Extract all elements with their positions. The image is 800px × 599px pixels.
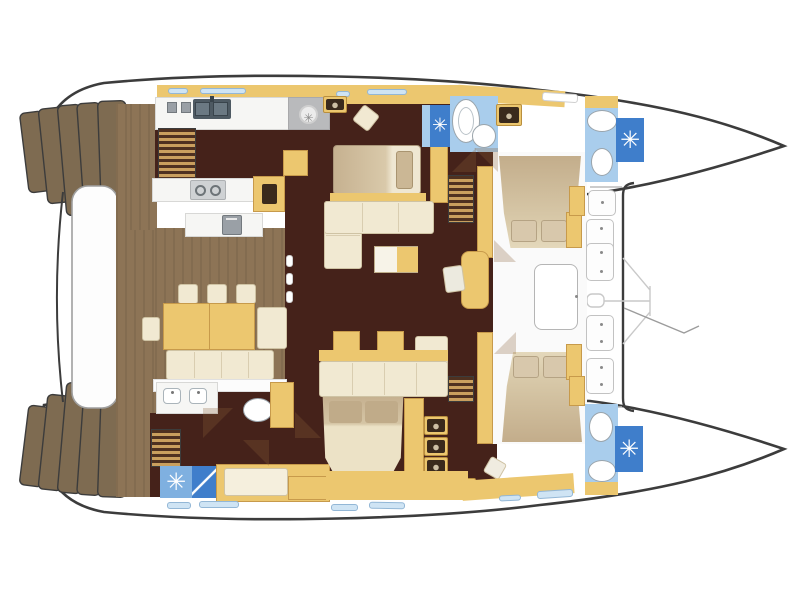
door-swing — [494, 332, 516, 354]
dining-chair — [236, 284, 256, 304]
salon-door-track — [286, 255, 293, 267]
master-shower: ✳ — [160, 466, 192, 498]
deck-hatch — [586, 243, 614, 281]
hull-window — [367, 89, 407, 95]
bathroom-sink — [587, 110, 617, 132]
salon-door-track — [286, 273, 293, 285]
master-bath-cabinet — [270, 382, 294, 428]
wardrobe — [430, 145, 448, 203]
bathroom-sink — [588, 460, 616, 482]
port-hull-stairs-aft — [151, 429, 181, 467]
galley-appliance-icon — [181, 102, 191, 113]
bed-pillow — [511, 220, 537, 242]
port-cabinetry-band — [326, 471, 468, 500]
hull-window — [168, 88, 188, 94]
toilet — [591, 148, 613, 176]
aft-platform — [72, 186, 118, 408]
dining-end-seat — [257, 307, 287, 349]
dining-chair — [142, 317, 160, 341]
bed-pillow — [365, 401, 398, 423]
bulkhead-cabinet — [477, 166, 493, 258]
lounge-side-cabinet — [566, 212, 582, 248]
shower-drain-icon: ✳ — [166, 470, 186, 494]
toilet — [589, 412, 613, 442]
door-swing — [203, 408, 233, 438]
equipment-locker-icon — [424, 437, 448, 456]
salon-aft-sofa — [319, 361, 448, 397]
lounge-table — [534, 264, 578, 330]
master-shower-glass — [192, 466, 216, 498]
master-desk — [288, 476, 328, 500]
deck-hatch — [586, 315, 614, 351]
hull-window — [331, 504, 358, 511]
hull-window — [199, 501, 239, 508]
hull-window — [499, 494, 521, 501]
vanity-sink — [163, 388, 181, 404]
starboard-hull-stairs-fwd — [448, 175, 474, 223]
hull-window — [200, 88, 246, 94]
aft-cabin-bed — [333, 145, 421, 195]
ceiling-fan-icon: ✳ — [299, 105, 318, 124]
door-swing — [452, 148, 476, 172]
fwd-shower-stall: ✳ — [616, 118, 644, 162]
guest-shower-aft-stall: ✳ — [430, 105, 450, 147]
salon-door-track — [286, 291, 293, 303]
dining-table — [163, 303, 255, 350]
dining-chair — [178, 284, 198, 304]
door-swing — [474, 148, 498, 172]
galley-cabinet — [283, 150, 308, 176]
bed-pillow — [396, 151, 413, 189]
deck-hatch — [588, 190, 616, 216]
bed-pillow — [513, 356, 539, 378]
dishwasher-icon — [222, 215, 242, 235]
vanity-sink — [189, 388, 207, 404]
bed-pillow — [541, 220, 567, 242]
hull-window — [369, 502, 405, 510]
coffee-table — [374, 246, 418, 273]
galley-double-sink — [193, 99, 231, 119]
lounge-side-cabinet — [566, 344, 582, 380]
galley-appliance-icon — [167, 102, 177, 113]
galley-entry-stairs — [158, 128, 196, 184]
guest-shower-aft — [422, 105, 430, 147]
nav-seat — [461, 251, 489, 309]
toilet — [472, 124, 496, 148]
equipment-locker-icon — [323, 96, 347, 113]
chaise-lounger — [224, 468, 288, 496]
hull-window — [167, 502, 191, 509]
fwd-bath-counter — [585, 482, 618, 495]
shower-drain-icon: ✳ — [620, 128, 640, 152]
aft-platform-line — [57, 192, 63, 402]
bulkhead-trim — [569, 376, 585, 406]
salon-sofa-l-horizontal — [324, 201, 434, 234]
door-swing — [494, 240, 516, 262]
master-bed — [321, 397, 405, 475]
shower-drain-icon: ✳ — [432, 117, 448, 136]
oven-cabinet — [253, 176, 285, 212]
port-hull-stairs-mid — [448, 376, 474, 402]
shower-drain-icon: ✳ — [619, 437, 639, 461]
sofa-back-rail — [319, 350, 448, 361]
deck-hatch — [586, 358, 614, 394]
bulkhead-trim — [569, 186, 585, 216]
door-swing — [243, 440, 269, 466]
equipment-locker-icon — [496, 104, 522, 126]
bed-pillow — [329, 401, 362, 423]
aft-deck-upper — [130, 104, 157, 230]
floorplan-canvas: ✳ ✳ ✳ — [0, 0, 800, 599]
dining-chair — [207, 284, 227, 304]
dining-bench — [166, 350, 274, 380]
door-swing — [295, 412, 321, 438]
bulkhead-cabinet — [477, 332, 493, 444]
fwd-shower-stall: ✳ — [615, 426, 643, 472]
oven-icon — [262, 184, 277, 204]
nav-stool — [442, 265, 465, 294]
toilet — [243, 398, 273, 422]
trampoline-edge — [623, 183, 634, 411]
cooktop-icon — [190, 180, 226, 200]
equipment-locker-icon — [424, 416, 448, 435]
